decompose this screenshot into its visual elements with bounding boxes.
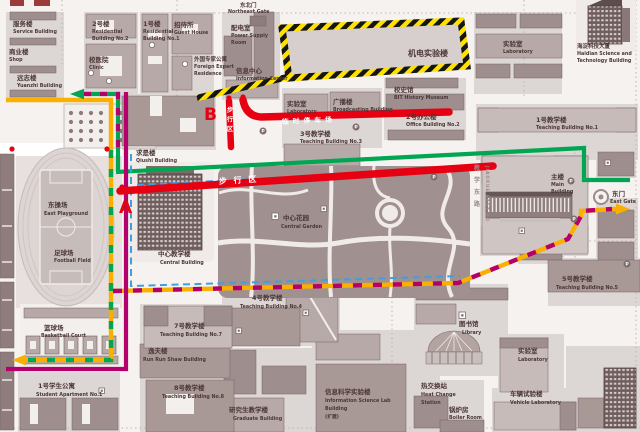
marker-a: A	[119, 198, 133, 218]
label-info-science-en2: Building	[325, 406, 348, 412]
label-residential1-zh: 1号楼	[143, 19, 161, 28]
label-football-zh: 足球场	[54, 248, 74, 257]
southeast-tower	[604, 368, 636, 428]
label-info-science-zh: 信息科学实验楼	[325, 387, 371, 396]
label-history-museum-zh: 校史馆	[394, 85, 414, 94]
label-main-building-en2: Building	[551, 189, 574, 195]
label-jidian-lab: 机电实验楼	[408, 48, 448, 58]
label-teaching4-en: Teaching Building No.4	[240, 304, 303, 310]
label-shop-zh: 商业楼	[9, 47, 29, 56]
label-teaching7-zh: 7号教学楼	[174, 321, 205, 330]
label-teaching4-zh: 4号教学楼	[252, 293, 283, 302]
label-foreign-expert-en2: Residence	[194, 71, 222, 77]
label-guest-house-zh: 招待所	[174, 20, 194, 29]
east-playground-stadium	[18, 148, 114, 306]
label-basketball-zh: 篮球场	[43, 323, 64, 332]
label-boiler-zh: 锅炉房	[449, 405, 469, 414]
label-vehicle-lab-zh: 车辆试验楼	[510, 389, 543, 398]
label-laboratory-s-en: Laboratory	[518, 357, 549, 363]
label-history-museum-en: BIT History Museum	[394, 95, 448, 101]
label-teaching1-zh: 1号教学楼	[536, 115, 567, 124]
label-main-building-en1: Main	[551, 182, 565, 188]
label-power-supply-zh: 配电室	[231, 23, 251, 32]
label-teaching5-zh: 5号教学楼	[562, 274, 593, 283]
label-laboratory-m-zh: 实验室	[287, 99, 307, 108]
label-teaching3-en: Teaching Building No.3	[300, 139, 362, 145]
label-residential2-en2: Building No.2	[92, 36, 128, 42]
label-heat-station-en2: Station	[421, 400, 441, 406]
label-residential1-en1: Residential	[143, 29, 174, 35]
label-teaching3-zh: 3号教学楼	[300, 129, 331, 138]
label-teaching5-en: Teaching Building No.5	[556, 285, 618, 291]
label-student-apt1-zh: 1号学生公寓	[38, 381, 76, 390]
label-yuanzhi-en: Yuanzhi Building	[16, 83, 63, 89]
label-teaching8-en: Teaching Building No.8	[162, 394, 225, 400]
label-residential2-en1: Residential	[92, 29, 123, 35]
campus-map-svg: P P P P P P 服务楼 Service Building 商业楼 Sho…	[0, 0, 640, 432]
label-main-building-zh: 主楼	[551, 172, 565, 181]
label-teaching8-zh: 8号教学楼	[174, 383, 205, 392]
label-heat-station-zh: 热交换站	[421, 381, 448, 390]
central-building-tower	[126, 162, 214, 262]
label-runrunshaw-zh: 逸夫楼	[148, 346, 168, 355]
label-haidian-en2: Technology Building	[577, 58, 632, 64]
label-central-garden-zh: 中心花园	[283, 213, 310, 222]
label-broadcasting-zh: 广播楼	[333, 97, 353, 106]
label-info-center-zh: 信息中心	[236, 66, 263, 75]
central-garden	[218, 166, 470, 298]
label-central-garden-en: Central Garden	[281, 224, 323, 230]
label-haidian-en1: Haidian Science and	[577, 51, 632, 57]
jiaoxue-road-label-en: JIAOXUE EAST RD	[485, 165, 490, 222]
label-office2-en: Office Building No.2	[406, 122, 460, 128]
label-broadcasting-en: Broadcasting Building	[333, 107, 393, 113]
label-clinic-en: Clinic	[89, 65, 104, 71]
label-clinic-zh: 校医院	[89, 55, 109, 64]
label-heat-station-en1: Heat Change	[421, 392, 456, 398]
label-basketball-en: Basketball Court	[41, 333, 87, 339]
label-northeast-gate-en: Northeast Gate	[228, 9, 270, 15]
label-east-playground-zh: 东操场	[48, 200, 68, 209]
label-east-gate-en: East Gate	[610, 199, 637, 205]
label-qiushi-en: Qiushi Building	[136, 158, 178, 164]
label-runrunshaw-en: Run Run Shaw Building	[143, 357, 206, 363]
main-building-colonnade	[486, 192, 572, 222]
label-yuanzhi-zh: 远志楼	[17, 73, 37, 82]
label-laboratory-m-en: Laboratory	[287, 109, 318, 115]
label-northeast-gate-zh: 东北门	[240, 1, 257, 9]
campus-map: P P P P P P 服务楼 Service Building 商业楼 Sho…	[0, 0, 640, 432]
label-laboratory-s-zh: 实验室	[518, 346, 538, 355]
label-library-en: Library	[462, 330, 482, 336]
label-foreign-expert-en1: Foreign Expert	[194, 64, 235, 70]
label-office2-zh: 2号办公楼	[406, 112, 437, 121]
label-guest-house-en: Guest House	[174, 30, 209, 36]
pedestrian-zone-vertical-label: 步行区	[226, 106, 234, 133]
label-info-center-en: Information Center	[236, 76, 288, 82]
label-power-supply-en1: Power Supply	[231, 33, 269, 39]
label-east-gate-zh: 东门	[612, 189, 626, 198]
label-vehicle-lab-en: Vehicle Laboratory	[510, 400, 562, 406]
marker-b: B	[204, 105, 217, 125]
label-boiler-en: Boiler Room	[449, 415, 482, 421]
label-graduate-en: Graduate Building	[233, 416, 283, 422]
label-info-science-en1: Information Science Lab	[325, 398, 391, 404]
label-east-playground-en: East Playground	[44, 211, 89, 217]
label-haidian-zh: 海淀科技大厦	[577, 42, 611, 50]
label-central-building-zh: 中心教学楼	[158, 249, 191, 258]
label-residential1-en2: Building No.1	[143, 36, 179, 42]
label-service-en: Service Building	[13, 29, 57, 35]
label-residential2-zh: 2号楼	[92, 19, 110, 28]
label-library-zh: 图书馆	[459, 319, 479, 328]
label-service-zh: 服务楼	[13, 19, 33, 28]
label-teaching1-en: Teaching Building No.1	[536, 125, 598, 131]
label-central-building-en: Central Building	[160, 260, 204, 266]
label-foreign-expert-zh: 外国专家公寓	[194, 55, 228, 63]
label-qiushi-zh: 求是楼	[136, 148, 156, 157]
label-shop-en: Shop	[9, 57, 23, 63]
label-laboratory-n-en: Laboratory	[503, 49, 534, 55]
label-info-science-en3: (扩建)	[325, 413, 339, 420]
east-gate-roundabout	[594, 190, 608, 204]
label-student-apt1-en: Student Apartment No.1	[36, 392, 102, 398]
label-football-en: Football Field	[54, 258, 91, 264]
label-teaching7-en: Teaching Building No.7	[160, 332, 222, 338]
label-laboratory-n-zh: 实验室	[503, 39, 523, 48]
label-power-supply-en2: Room	[231, 40, 246, 46]
label-graduate-zh: 研究生教学楼	[229, 405, 269, 414]
